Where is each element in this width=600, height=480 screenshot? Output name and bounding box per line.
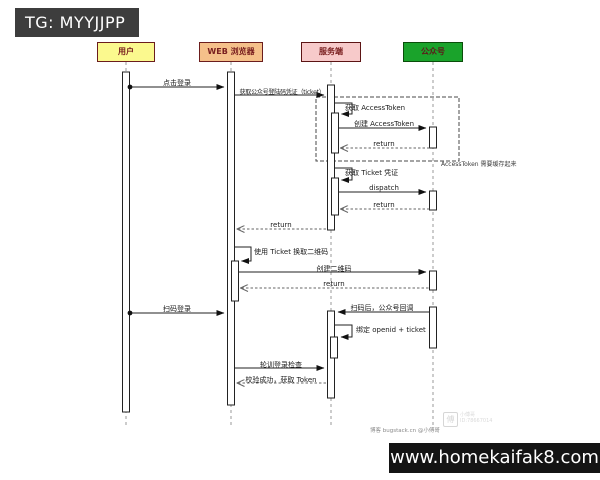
message-label: return [323,280,344,288]
top-watermark-banner: TG: MYYJJPP [15,8,139,37]
message-label: return [270,221,291,229]
message-label: return [373,140,394,148]
accesstoken-cache-note: AccessToken 需要缓存起来 [441,159,517,168]
message-label: 点击登录 [163,78,191,88]
message-label: return [373,201,394,209]
diagram-canvas [0,0,600,480]
message-label: 扫码登录 [163,304,191,314]
message-label: 绑定 openid + ticket [356,325,426,335]
actor-browser: WEB 浏览器 [199,42,263,62]
author-logo-watermark: 傅 小傅哥 ID:78667014 [443,412,492,427]
message-label: 获取公众号登陆码凭证（ticket） [239,87,324,96]
message-label: 轮训登录检查 [260,360,302,370]
actor-official-account: 公众号 [403,42,463,62]
message-label: 校验成功，获取 Token [245,375,316,385]
message-label: 创建 AccessToken [354,119,414,129]
message-label: dispatch [369,184,399,192]
message-start-dot [128,311,133,316]
actor-server: 服务端 [301,42,361,62]
message-label: 获取 AccessToken [345,103,405,113]
actor-user: 用户 [97,42,155,62]
sequence-diagram-page: TG: MYYJJPP 用户 WEB 浏览器 服务端 公众号 点击登录 获取公众… [0,0,600,480]
author-logo-icon: 傅 [443,412,458,427]
message-label: 扫码后，公众号回调 [351,303,414,313]
message-start-dot [128,85,133,90]
blog-credit-watermark: 博客 bugstack.cn @小傅哥 [370,426,440,434]
message-label: 使用 Ticket 换取二维码 [254,247,328,257]
message-label: 创建二维码 [317,264,352,274]
message-label: 获取 Ticket 凭证 [345,168,398,178]
bottom-url-banner: www.homekaifak8.com [389,443,600,473]
author-logo-id: ID:78667014 [460,418,492,424]
lifelines [126,62,433,428]
